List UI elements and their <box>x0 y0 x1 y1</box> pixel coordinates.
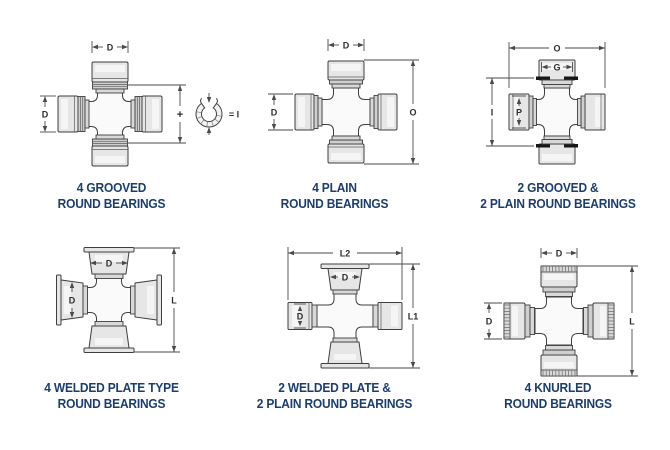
u-joint-cross <box>509 60 605 164</box>
dim-label-l2: L2 <box>340 248 351 258</box>
caption-4-plain: 4 PLAIN ROUND BEARINGS <box>232 180 437 212</box>
bearing-cap-bottom-grooved <box>536 136 578 164</box>
bearing-cap-right <box>131 96 162 132</box>
dimension-top-d: D <box>328 39 364 51</box>
bearing-cap-right <box>584 303 615 339</box>
cross-body <box>535 297 583 345</box>
dim-label-l1: L1 <box>408 311 419 321</box>
caption-2-grooved-2-plain: 2 GROOVED & 2 PLAIN ROUND BEARINGS <box>455 180 661 212</box>
u-joint-cross <box>58 62 162 166</box>
cross-body <box>86 90 134 138</box>
caption-line: 4 PLAIN <box>232 180 437 196</box>
caption-line: ROUND BEARINGS <box>9 396 214 412</box>
u-joint-cross <box>504 266 614 376</box>
cross-body <box>85 276 133 324</box>
bearing-types-diagram-sheet: D D + = I <box>0 0 670 450</box>
dimension-left-d: D <box>484 303 502 339</box>
bearing-cap-right <box>370 94 397 130</box>
diagram-2-grooved-2-plain: O G I P <box>446 0 670 178</box>
dimension-top-d: D <box>541 248 577 258</box>
u-joint-cross <box>295 61 397 163</box>
bearing-cap-bottom <box>84 322 134 353</box>
dim-label-g: G <box>553 62 560 72</box>
diagram-4-knurled: D D L <box>446 225 670 387</box>
dim-label-l: L <box>629 316 635 326</box>
bearing-cap-right <box>131 275 162 325</box>
caption-4-welded-plate: 4 WELDED PLATE TYPE ROUND BEARINGS <box>9 380 214 412</box>
caption-line: 2 WELDED PLATE & <box>232 380 437 396</box>
dim-label-d-top: D <box>343 40 350 50</box>
caption-line: 2 PLAIN ROUND BEARINGS <box>455 196 661 212</box>
dimension-left-d: D <box>268 94 293 130</box>
cross-body <box>317 291 373 341</box>
caption-line: 4 WELDED PLATE TYPE <box>9 380 214 396</box>
caption-2-welded-2-plain: 2 WELDED PLATE & 2 PLAIN ROUND BEARINGS <box>232 380 437 412</box>
dim-label-d-left: D <box>297 311 304 321</box>
caption-4-grooved: 4 GROOVED ROUND BEARINGS <box>9 180 214 212</box>
caption-line: 2 PLAIN ROUND BEARINGS <box>232 396 437 412</box>
dim-label-d-left: D <box>42 109 49 119</box>
bearing-cap-bottom-welded <box>321 338 369 368</box>
dim-label-d-top: D <box>107 42 114 52</box>
caption-4-knurled: 4 KNURLED ROUND BEARINGS <box>455 380 661 412</box>
bearing-cap-left <box>58 96 89 132</box>
dim-label-p: P <box>516 107 522 117</box>
cross-body <box>322 88 370 136</box>
bearing-cap-left <box>295 94 322 130</box>
dimension-left-d: D <box>40 96 56 132</box>
bearing-cap-bottom <box>328 136 364 163</box>
bearing-cap-left <box>504 303 535 339</box>
bearing-cap-top <box>92 62 128 93</box>
bearing-cap-right-plain <box>373 303 402 330</box>
bearing-cap-top <box>541 266 577 297</box>
dim-label-d-top: D <box>106 258 113 268</box>
bearing-cap-top <box>328 61 364 88</box>
dim-label-d-top: D <box>556 248 563 258</box>
dim-label-o: O <box>553 43 560 53</box>
dimension-top-d: D <box>92 41 128 53</box>
dim-label-d-left: D <box>486 316 493 326</box>
cross-body <box>533 88 581 136</box>
caption-line: 4 GROOVED <box>9 180 214 196</box>
dim-label-o: O <box>409 107 416 117</box>
bearing-cap-right-plain <box>578 94 606 130</box>
dim-label-d-left: D <box>69 295 76 305</box>
diagram-4-grooved: D D + = I <box>0 0 255 178</box>
caption-line: 4 KNURLED <box>455 380 661 396</box>
caption-line: ROUND BEARINGS <box>455 396 661 412</box>
dim-label-d-left: D <box>271 107 278 117</box>
bearing-cap-bottom <box>541 346 577 377</box>
dim-label-i: I <box>491 107 494 117</box>
bearing-cap-bottom <box>92 135 128 166</box>
dim-label-plus: + <box>177 109 183 121</box>
diagram-2-welded-2-plain: L2 D D L1 <box>223 225 446 387</box>
bearing-cap-left-plain <box>509 94 537 130</box>
caption-line: 2 GROOVED & <box>455 180 661 196</box>
caption-line: ROUND BEARINGS <box>232 196 437 212</box>
diagram-4-plain: D D O <box>223 0 446 178</box>
dim-label-l: L <box>171 295 177 305</box>
dim-label-d-top: D <box>342 272 349 282</box>
caption-line: ROUND BEARINGS <box>9 196 214 212</box>
diagram-4-welded-plate: D D L <box>0 225 223 387</box>
